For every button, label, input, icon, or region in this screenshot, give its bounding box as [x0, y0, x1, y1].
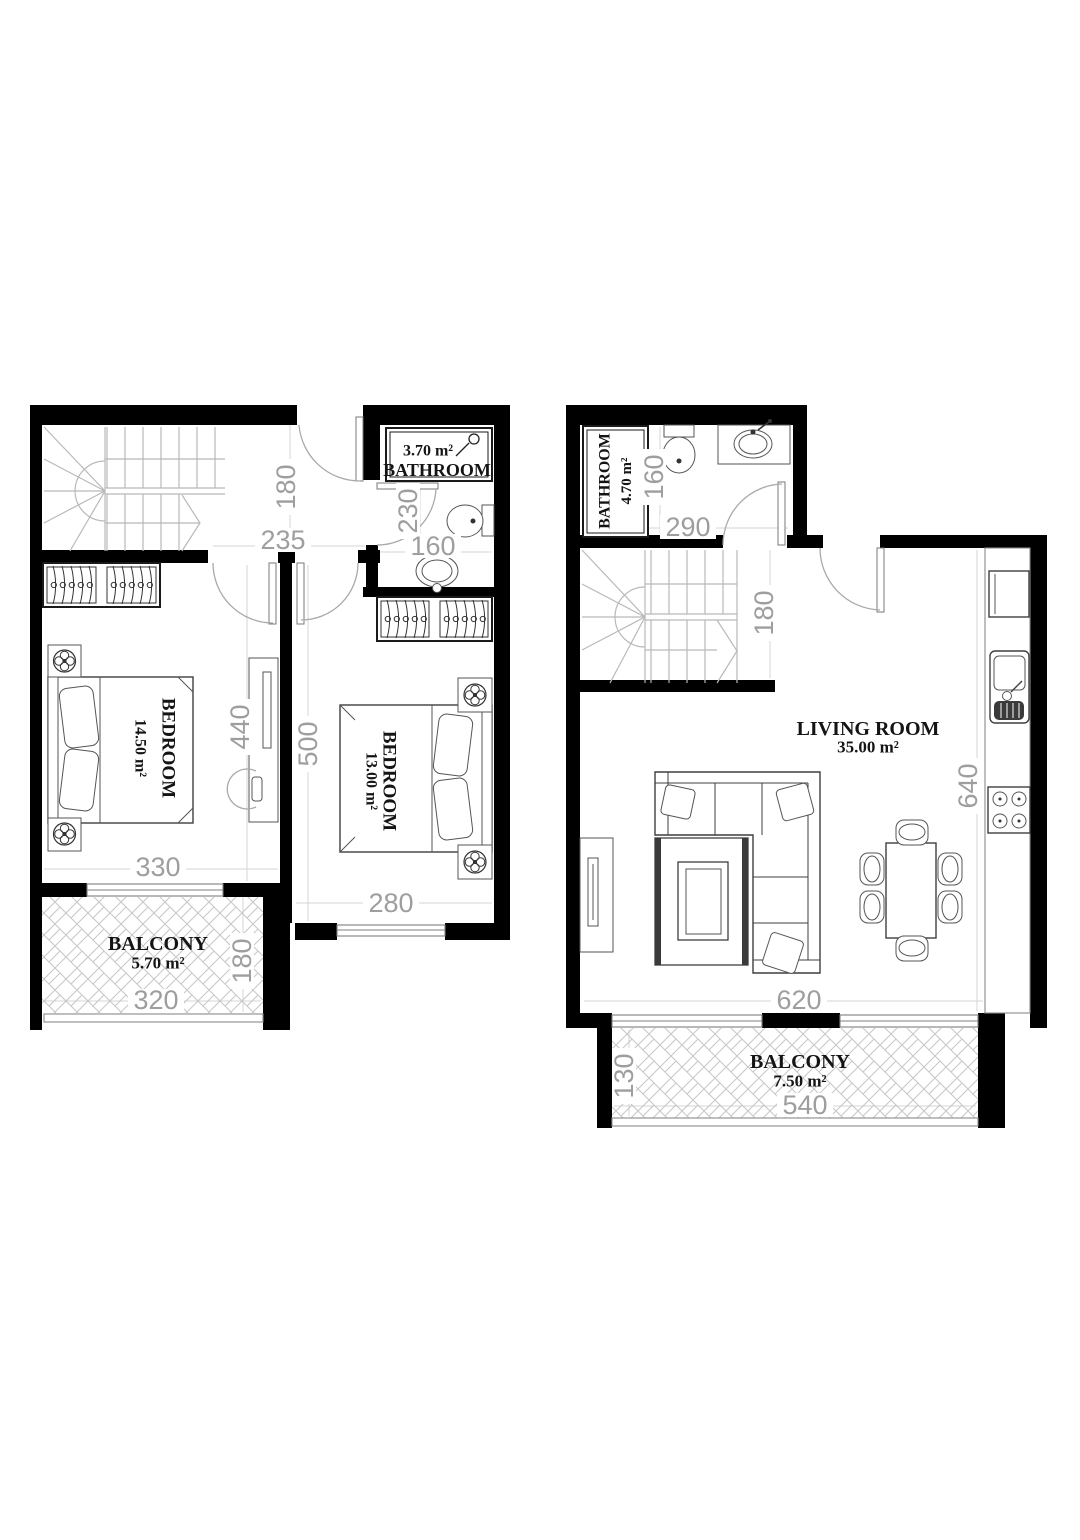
floorplan-page: 3.70 m² BATHROOM BEDROOM 14.50 m² BEDROO…	[0, 0, 1080, 1540]
floorplan-canvas: 3.70 m² BATHROOM BEDROOM 14.50 m² BEDROO…	[0, 0, 1080, 1540]
staircase-lower-icon	[582, 550, 737, 683]
staircase-upper-icon	[44, 427, 225, 551]
balcony-window-f1	[87, 884, 223, 896]
dim-hall-length: 235	[260, 525, 305, 555]
dim-hall-width: 180	[271, 464, 301, 509]
living-room-area: 35.00 m²	[837, 738, 899, 757]
bedroom2-area: 13.00 m²	[363, 752, 380, 810]
bathroom-label-f2: BATHROOM	[597, 433, 614, 529]
dim-balcony-width-f2: 540	[782, 1090, 827, 1120]
bathroom-area-f2: 4.70 m²	[619, 457, 635, 504]
stove-icon	[988, 787, 1030, 833]
wardrobe-bedroom2-icon	[377, 597, 492, 641]
balcony-label-f2: BALCONY	[750, 1051, 851, 1073]
nightstand-plant-icon	[458, 678, 492, 712]
balcony-area-f1: 5.70 m²	[131, 954, 184, 973]
kitchen-counter	[985, 548, 1030, 1013]
coffee-table-rug-icon	[655, 838, 748, 965]
floor-plan-bedroom-level: 3.70 m² BATHROOM BEDROOM 14.50 m² BEDROO…	[30, 405, 510, 1030]
kitchen-sink-icon	[990, 651, 1029, 723]
dim-balcony-depth-f2: 130	[609, 1053, 639, 1098]
wardrobe-bedroom1-icon	[43, 563, 160, 607]
dining-table-icon	[860, 820, 962, 961]
balcony-area-f2: 7.50 m²	[773, 1072, 826, 1091]
dim-bathroom-depth: 230	[393, 488, 423, 533]
entry-door-f2	[820, 548, 884, 612]
bathroom-area-f1: 3.70 m²	[403, 443, 453, 460]
vanity-sink-icon	[718, 419, 790, 464]
dim-balcony-width-f1: 320	[133, 985, 178, 1015]
dim-bedroom1-depth: 440	[225, 704, 255, 749]
dim-bedroom2-width: 280	[368, 888, 413, 918]
balcony-railing-f1	[44, 1014, 263, 1022]
bedroom1-area: 14.50 m²	[132, 719, 149, 777]
dim-hall-width-f2: 180	[749, 590, 779, 635]
dim-bedroom1-width: 330	[135, 852, 180, 882]
dim-bathroom-length-f2: 290	[665, 512, 710, 542]
nightstand-plant-icon	[48, 818, 81, 851]
bedroom2-label: BEDROOM	[379, 731, 400, 831]
dim-bathroom-width: 160	[410, 531, 455, 561]
fridge-icon	[989, 571, 1029, 617]
floor-plan-living-level: BATHROOM 4.70 m²	[566, 405, 1047, 1128]
nightstand-plant-icon	[48, 645, 81, 677]
dim-bathroom-width-f2: 160	[639, 454, 669, 499]
bedroom2-window	[337, 925, 445, 936]
tv-stand-icon	[580, 838, 613, 952]
bathroom-door-f2	[723, 482, 785, 545]
dim-kitchen-run: 640	[953, 763, 983, 808]
bedroom1-door	[213, 563, 276, 624]
entry-door-f1	[299, 417, 363, 481]
nightstand-plant-icon	[458, 845, 492, 879]
dim-living-width: 620	[776, 985, 821, 1015]
bedroom2-door	[297, 563, 358, 624]
dim-bedroom2-depth: 500	[293, 721, 323, 766]
dim-balcony-depth-f1: 180	[227, 938, 257, 983]
bathroom-label-f1: BATHROOM	[383, 460, 491, 480]
bathroom-label-box-f1: 3.70 m² BATHROOM	[383, 428, 492, 481]
bedroom1-label: BEDROOM	[158, 698, 179, 798]
balcony-label-f1: BALCONY	[108, 933, 209, 955]
